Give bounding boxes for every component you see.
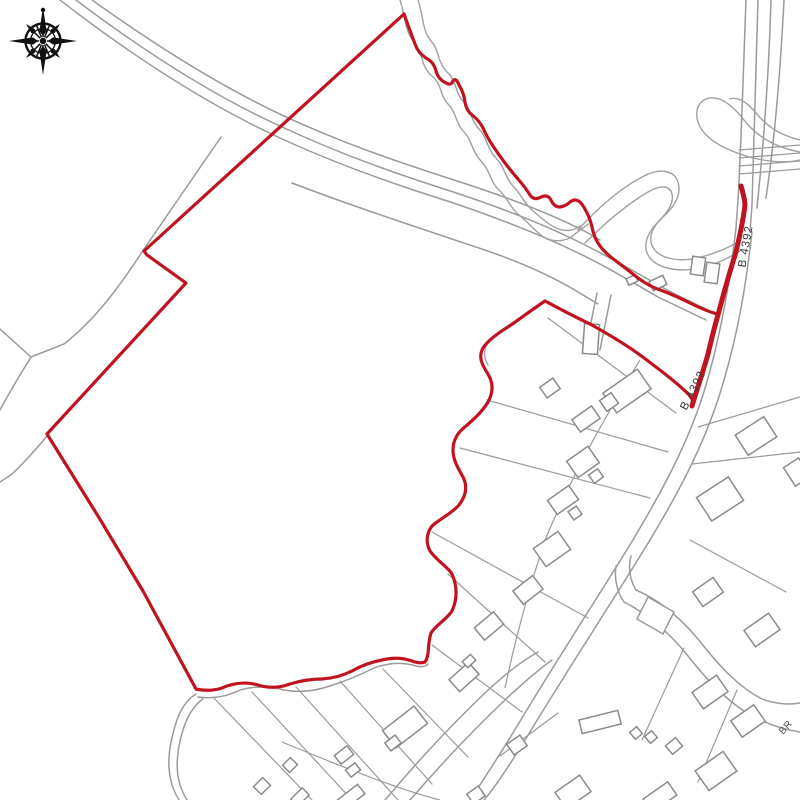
building-outline	[572, 406, 600, 432]
building-outline	[513, 576, 543, 605]
plot-boundary-line	[500, 713, 558, 756]
map-labels: B 4392 B 4392 BR	[678, 225, 795, 737]
building-outline	[735, 417, 777, 456]
building-outline	[449, 662, 479, 691]
plot-boundary-line	[642, 648, 684, 740]
site-boundary	[47, 14, 745, 690]
field-boundary	[0, 436, 47, 482]
building-outline	[254, 778, 271, 795]
building-outline	[704, 262, 720, 284]
building-outline	[731, 705, 765, 737]
track-line	[600, 295, 611, 350]
field-boundary	[0, 329, 31, 357]
building-outline	[346, 763, 361, 777]
plot-boundary-line	[460, 448, 650, 498]
map-canvas: B 4392 B 4392 BR	[0, 0, 800, 800]
building-outline	[693, 577, 724, 606]
street-label-partial: BR	[777, 719, 795, 737]
building-outline	[474, 612, 503, 640]
building-outline	[291, 788, 309, 800]
road-line	[76, 0, 712, 312]
building-outline	[540, 378, 561, 398]
street-turning-head	[637, 597, 674, 634]
building-outline	[690, 256, 705, 276]
road-line	[750, 0, 758, 232]
street-line	[630, 556, 636, 590]
road-line	[766, 0, 784, 198]
building-outline	[533, 531, 570, 566]
plot-boundaries	[213, 318, 800, 800]
road-line	[60, 0, 706, 320]
building-outline	[643, 782, 677, 800]
north-compass-icon	[9, 7, 77, 75]
building-outline	[337, 784, 365, 800]
building-outline	[467, 786, 485, 800]
building-outline	[692, 675, 728, 709]
plot-boundary-line	[432, 645, 522, 712]
building-outline	[283, 758, 298, 773]
road-line	[92, 0, 600, 240]
building-outline	[744, 613, 780, 647]
building-outline	[555, 775, 591, 800]
building-outline	[589, 469, 604, 484]
field-boundary	[0, 137, 221, 410]
building-outline	[645, 731, 658, 744]
building-outline	[665, 738, 682, 755]
building-outline	[695, 751, 737, 790]
building-outline	[579, 710, 621, 733]
building-outline	[568, 506, 582, 520]
building-outline	[696, 477, 743, 521]
plot-boundary-line	[296, 687, 398, 800]
footpath-line	[177, 699, 203, 800]
road-network	[0, 0, 800, 800]
building-outline	[783, 458, 800, 486]
plot-boundary-line	[692, 452, 800, 464]
building-outline	[630, 727, 643, 740]
site-plan-map: B 4392 B 4392 BR	[0, 0, 800, 800]
